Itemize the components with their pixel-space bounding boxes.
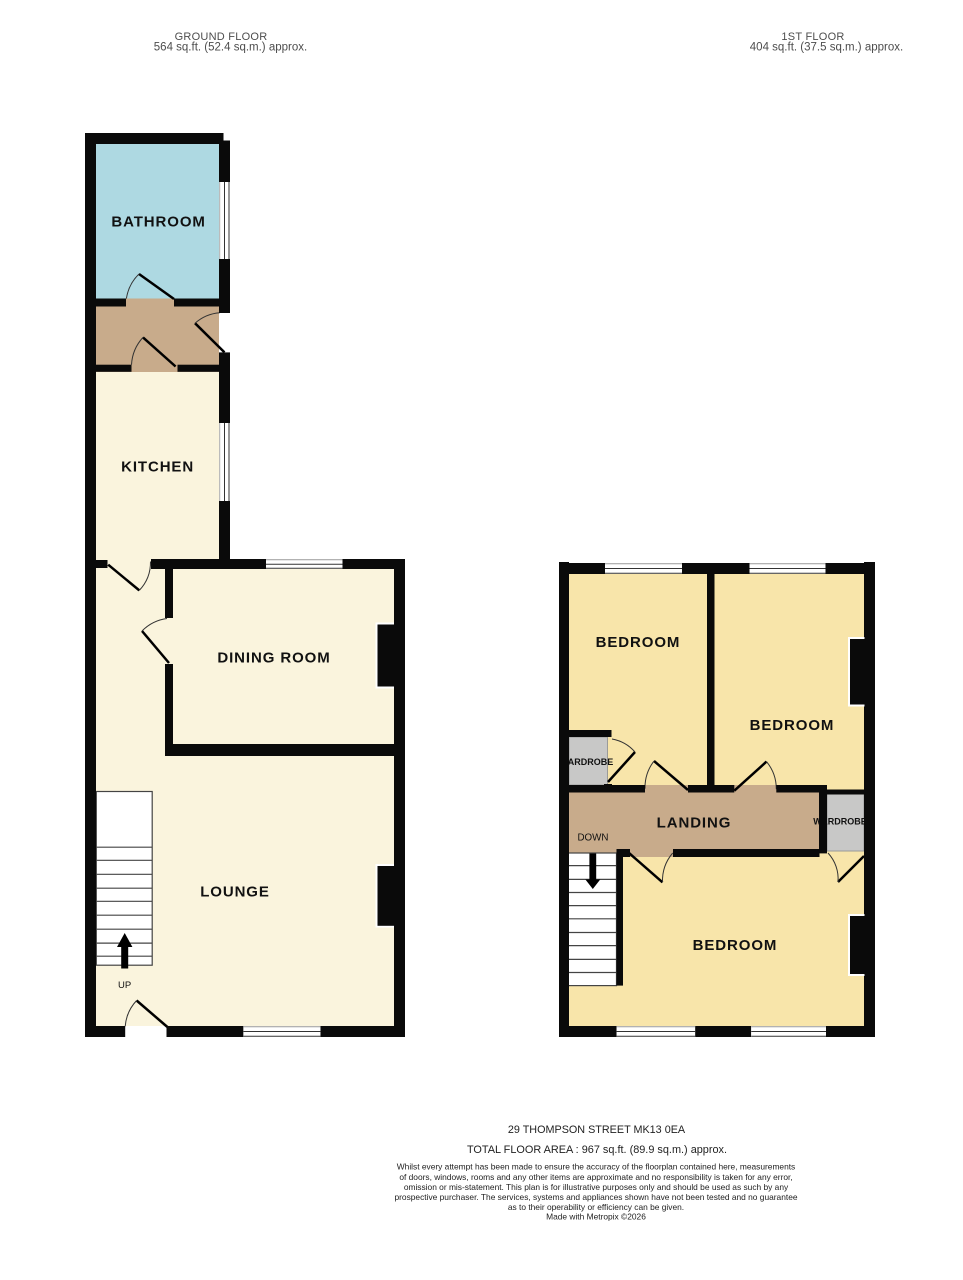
svg-text:BEDROOM: BEDROOM — [596, 634, 681, 651]
svg-text:Made with Metropix ©2026: Made with Metropix ©2026 — [546, 1212, 646, 1222]
svg-text:Whilst every attempt has been: Whilst every attempt has been made to en… — [397, 1162, 796, 1172]
svg-text:LANDING: LANDING — [657, 815, 732, 832]
svg-text:of doors, windows, rooms and a: of doors, windows, rooms and any other i… — [399, 1172, 792, 1182]
svg-text:BEDROOM: BEDROOM — [693, 937, 778, 954]
svg-text:564 sq.ft. (52.4 sq.m.) approx: 564 sq.ft. (52.4 sq.m.) approx. — [154, 42, 307, 54]
svg-text:prospective purchaser. The ser: prospective purchaser. The services, sys… — [394, 1192, 797, 1202]
svg-text:DINING ROOM: DINING ROOM — [217, 650, 330, 667]
svg-text:LOUNGE: LOUNGE — [200, 884, 270, 901]
svg-text:KITCHEN: KITCHEN — [121, 459, 194, 476]
svg-text:UP: UP — [118, 980, 131, 991]
svg-text:TOTAL FLOOR AREA : 967 sq.ft.: TOTAL FLOOR AREA : 967 sq.ft. (89.9 sq.m… — [467, 1144, 727, 1156]
svg-text:BEDROOM: BEDROOM — [750, 717, 835, 734]
svg-text:BATHROOM: BATHROOM — [111, 214, 205, 231]
svg-text:404 sq.ft. (37.5 sq.m.) approx: 404 sq.ft. (37.5 sq.m.) approx. — [750, 42, 903, 54]
svg-text:as to their operability or eff: as to their operability or efficiency ca… — [508, 1202, 684, 1212]
svg-text:29 THOMPSON STREET MK13 0EA: 29 THOMPSON STREET MK13 0EA — [508, 1124, 686, 1136]
svg-text:DOWN: DOWN — [577, 833, 608, 844]
svg-text:omission or mis-statement. Thi: omission or mis-statement. This plan is … — [404, 1182, 789, 1192]
